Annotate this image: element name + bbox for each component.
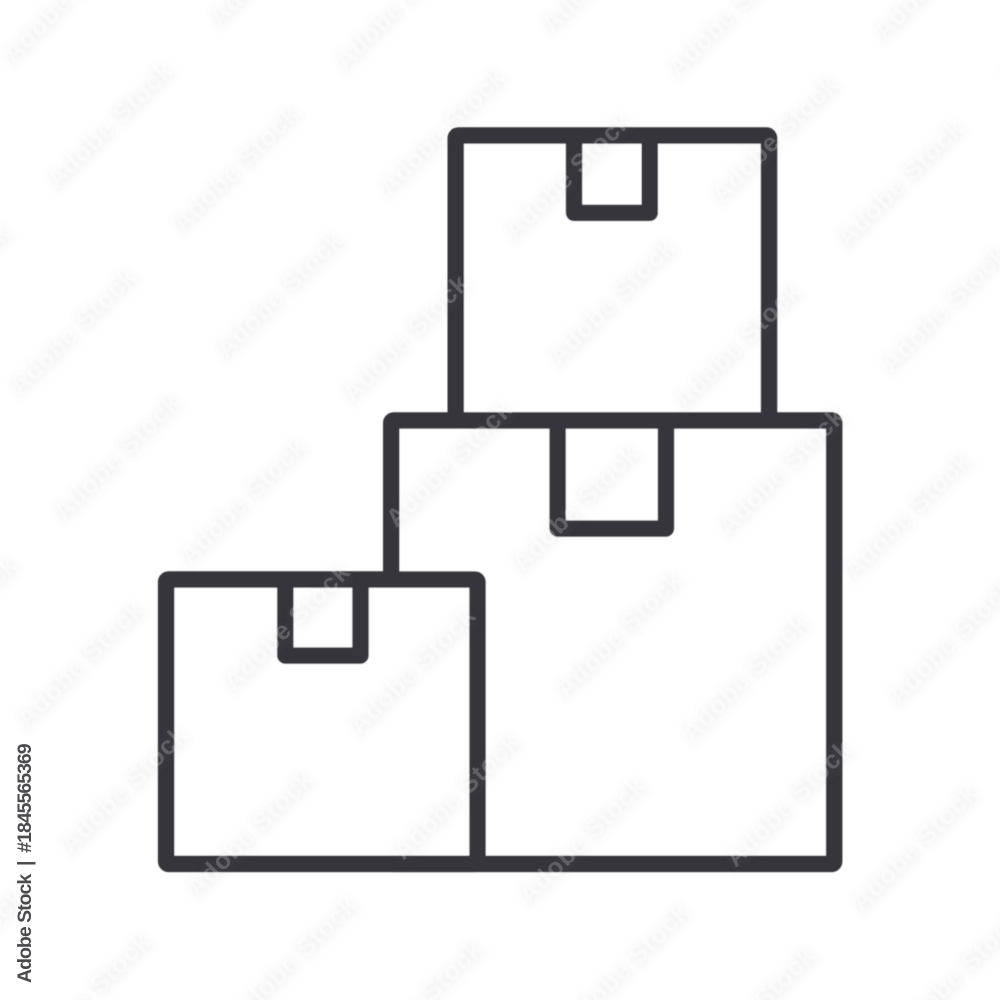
svg-text:Adobe Stock: Adobe Stock xyxy=(839,446,977,584)
svg-text:Adobe Stock: Adobe Stock xyxy=(883,572,1000,710)
svg-text:Adobe Stock: Adobe Stock xyxy=(49,388,187,526)
svg-text:Adobe Stock: Adobe Stock xyxy=(351,934,489,1000)
svg-text:Adobe Stock: Adobe Stock xyxy=(0,0,10,24)
svg-text:Adobe Stock: Adobe Stock xyxy=(995,0,1000,89)
svg-text:Adobe Stock: Adobe Stock xyxy=(0,551,24,689)
svg-text:Adobe Stock: Adobe Stock xyxy=(536,0,674,38)
svg-text:Adobe Stock: Adobe Stock xyxy=(0,0,135,68)
svg-text:Adobe Stock: Adobe Stock xyxy=(5,262,143,400)
svg-text:Adobe Stock: Adobe Stock xyxy=(869,0,1000,45)
svg-text:Adobe Stock: Adobe Stock xyxy=(0,218,17,356)
svg-text:Adobe Stock: Adobe Stock xyxy=(19,927,157,1000)
svg-text:Adobe Stock: Adobe Stock xyxy=(890,904,1000,1000)
svg-text:Adobe Stock: Adobe Stock xyxy=(167,99,305,237)
svg-text:Adobe Stock: Adobe Stock xyxy=(225,890,363,1000)
svg-text:Adobe Stock: Adobe Stock xyxy=(41,56,179,194)
svg-text:Adobe Stock: Adobe Stock xyxy=(876,239,1000,377)
svg-text:Adobe Stock: Adobe Stock xyxy=(330,0,468,75)
svg-text:Adobe Stock: Adobe Stock xyxy=(683,941,821,1000)
svg-text:Adobe Stock: Adobe Stock xyxy=(211,225,349,363)
svg-text:Adobe Stock: Adobe Stock xyxy=(174,432,312,570)
svg-text:Adobe Stock: Adobe Stock xyxy=(846,778,984,916)
svg-text:Adobe Stock: Adobe Stock xyxy=(204,0,342,31)
svg-text:Adobe Stock: Adobe Stock xyxy=(558,897,696,1000)
svg-text:Adobe Stock: Adobe Stock xyxy=(12,594,150,732)
svg-text:Adobe Stock: Adobe Stock xyxy=(662,0,800,82)
svg-text:Adobe Stock: Adobe Stock xyxy=(832,114,970,252)
